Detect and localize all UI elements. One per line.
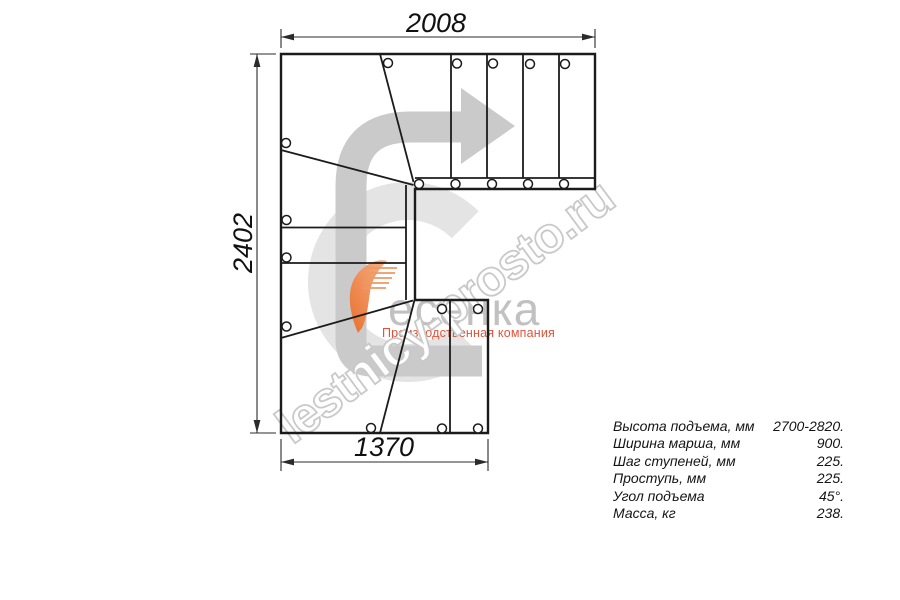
spec-value: 225. (817, 453, 844, 470)
dimension-left-label: 2402 (228, 213, 258, 274)
spec-label: Шаг ступеней, мм (613, 453, 736, 470)
spec-row-mass: Масса, кг 238. (613, 505, 844, 522)
spec-value: 45°. (819, 488, 844, 505)
specs-table: Высота подъема, мм 2700-2820. Ширина мар… (613, 418, 844, 522)
dimension-top-label: 2008 (405, 8, 466, 38)
spec-value: 225. (817, 470, 844, 487)
spec-label: Высота подъема, мм (613, 418, 755, 435)
spec-label: Проступь, мм (613, 470, 706, 487)
dimension-left: 2402 (228, 54, 276, 433)
spec-value: 900. (817, 435, 844, 452)
dimension-top: 2008 (281, 8, 595, 48)
spec-row-tread: Проступь, мм 225. (613, 470, 844, 487)
spec-value: 238. (817, 505, 844, 522)
spec-row-step: Шаг ступеней, мм 225. (613, 453, 844, 470)
spec-row-width: Ширина марша, мм 900. (613, 435, 844, 452)
spec-value: 2700-2820. (773, 418, 844, 435)
spec-label: Угол подъема (613, 488, 705, 505)
drawing-canvas: есенка Производственная компания lestnic… (0, 0, 900, 600)
spec-row-angle: Угол подъема 45°. (613, 488, 844, 505)
spec-label: Масса, кг (613, 505, 676, 522)
spec-row-height: Высота подъема, мм 2700-2820. (613, 418, 844, 435)
spec-label: Ширина марша, мм (613, 435, 740, 452)
dimension-bottom-label: 1370 (354, 432, 414, 462)
